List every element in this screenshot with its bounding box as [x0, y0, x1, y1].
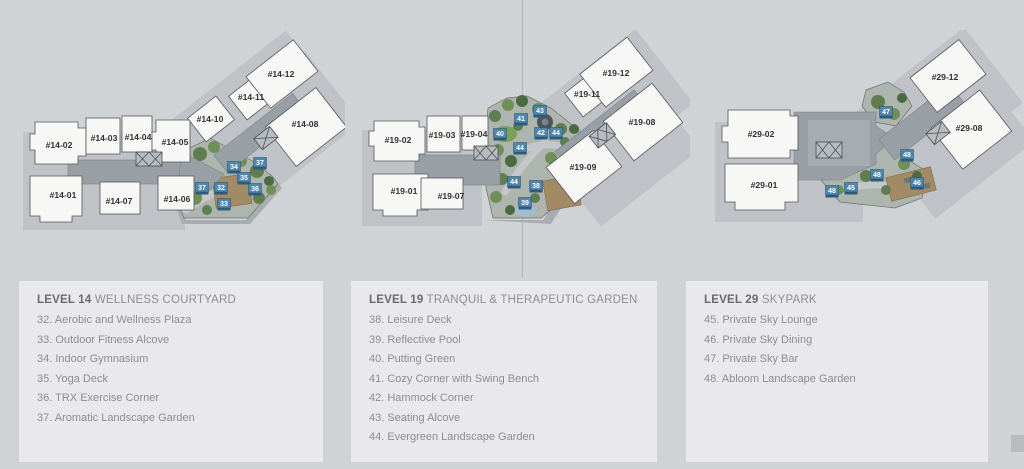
legend-list: 32. Aerobic and Wellness Plaza33. Outdoo… [37, 311, 305, 428]
amenity-marker-number: 39 [521, 200, 529, 207]
amenity-marker: 41 [515, 114, 528, 126]
legend-list: 45. Private Sky Lounge46. Private Sky Di… [704, 311, 970, 389]
unit-label: #14-07 [106, 196, 133, 206]
legend-item: 45. Private Sky Lounge [704, 311, 970, 331]
amenity-marker-number: 46 [913, 180, 921, 187]
unit-label: #29-02 [748, 129, 775, 139]
amenity-marker-number: 41 [517, 116, 525, 123]
legend-item: 46. Private Sky Dining [704, 331, 970, 351]
amenity-marker-number: 47 [882, 109, 890, 116]
amenity-marker: 44 [508, 177, 521, 189]
amenity-marker: 37 [254, 158, 267, 170]
amenity-marker-number: 42 [537, 130, 545, 137]
legend-item: 48. Abloom Landscape Garden [704, 370, 970, 390]
unit-label: #14-02 [46, 140, 73, 150]
unit-label: #19-11 [574, 89, 601, 99]
unit-label: #14-10 [197, 114, 224, 124]
unit-label: #14-05 [162, 137, 189, 147]
unit-label: #19-08 [629, 117, 656, 127]
amenity-marker: 48 [826, 186, 839, 198]
legend-title: LEVEL 19 TRANQUIL & THERAPEUTIC GARDEN [369, 294, 639, 306]
floor-plan-level-19: #19-02#19-03#19-04#19-01#19-07#19-11#19-… [355, 30, 690, 252]
unit-label: #29-01 [751, 180, 778, 190]
unit-label: #19-04 [461, 129, 488, 139]
amenity-marker-number: 34 [230, 164, 238, 171]
ui-fragment [1011, 435, 1024, 452]
amenity-marker: 33 [218, 199, 231, 211]
unit-label: #14-01 [50, 190, 77, 200]
amenity-marker: 40 [494, 129, 507, 141]
amenity-marker: 37 [196, 183, 209, 195]
amenity-marker: 35 [238, 173, 251, 185]
legend-level: LEVEL 29 [704, 294, 758, 306]
legend-item: 37. Aromatic Landscape Garden [37, 409, 305, 429]
unit-label: #14-12 [268, 69, 295, 79]
amenity-marker: 46 [911, 178, 924, 190]
lift-core-icon [474, 146, 498, 160]
unit-label: #14-03 [91, 133, 118, 143]
amenity-marker-number: 37 [198, 185, 206, 192]
unit-label: #19-12 [603, 68, 630, 78]
amenity-marker: 44 [514, 143, 527, 155]
legend-item: 43. Seating Alcove [369, 409, 639, 429]
unit-label: #19-09 [570, 162, 597, 172]
legend-panel-level-29: LEVEL 29 SKYPARK 45. Private Sky Lounge4… [686, 281, 988, 462]
legend-name: WELLNESS COURTYARD [95, 294, 236, 306]
amenity-marker-number: 32 [217, 185, 225, 192]
floor-plan-level-29: #29-02#29-01#29-12#29-08 474848464548 [690, 30, 1024, 252]
unit-label: #19-01 [391, 186, 418, 196]
legend-item: 32. Aerobic and Wellness Plaza [37, 311, 305, 331]
amenity-marker: 36 [249, 184, 262, 196]
amenity-marker-number: 33 [220, 201, 228, 208]
amenity-marker-number: 38 [532, 183, 540, 190]
unit-label: #19-02 [385, 135, 412, 145]
unit-label: #14-08 [292, 119, 319, 129]
floor-plan-level-14: #14-02#14-03#14-04#14-05#14-01#14-07#14-… [10, 30, 345, 252]
amenity-marker: 42 [535, 128, 548, 140]
legend-item: 47. Private Sky Bar [704, 350, 970, 370]
amenity-marker: 44 [550, 128, 563, 140]
legend-panel-level-19: LEVEL 19 TRANQUIL & THERAPEUTIC GARDEN 3… [351, 281, 657, 462]
amenity-marker-number: 44 [510, 179, 518, 186]
amenity-marker: 45 [845, 183, 858, 195]
legend-name: TRANQUIL & THERAPEUTIC GARDEN [427, 294, 638, 306]
legend-list: 38. Leisure Deck39. Reflective Pool40. P… [369, 311, 639, 448]
amenity-marker-number: 44 [516, 145, 524, 152]
legend-item: 44. Evergreen Landscape Garden [369, 428, 639, 448]
amenity-marker: 48 [901, 150, 914, 162]
legend-item: 33. Outdoor Fitness Alcove [37, 331, 305, 351]
amenity-marker: 38 [530, 181, 543, 193]
amenity-marker: 43 [534, 106, 547, 118]
unit-label: #19-03 [429, 130, 456, 140]
amenity-marker-number: 36 [251, 186, 259, 193]
amenity-marker: 47 [880, 107, 893, 119]
unit-label: #14-04 [125, 132, 152, 142]
amenity-marker: 34 [228, 162, 241, 174]
amenity-marker-number: 44 [552, 130, 560, 137]
legend-level: LEVEL 14 [37, 294, 91, 306]
lift-core-icon [816, 142, 842, 158]
legend-name: SKYPARK [762, 294, 817, 306]
amenity-marker-number: 48 [903, 152, 911, 159]
legend-item: 36. TRX Exercise Corner [37, 389, 305, 409]
unit-label: #19-07 [438, 191, 465, 201]
amenity-marker: 39 [519, 198, 532, 210]
amenity-marker-number: 40 [496, 131, 504, 138]
legend-title: LEVEL 14 WELLNESS COURTYARD [37, 294, 305, 306]
amenity-marker-number: 37 [256, 160, 264, 167]
legend-item: 38. Leisure Deck [369, 311, 639, 331]
legend-title: LEVEL 29 SKYPARK [704, 294, 970, 306]
amenity-marker: 32 [215, 183, 228, 195]
amenity-marker: 48 [871, 170, 884, 182]
amenity-marker-number: 45 [847, 185, 855, 192]
lift-core-icon [136, 152, 162, 166]
legend-item: 39. Reflective Pool [369, 331, 639, 351]
legend-item: 34. Indoor Gymnasium [37, 350, 305, 370]
amenity-marker-number: 43 [536, 108, 544, 115]
legend-item: 42. Hammock Corner [369, 389, 639, 409]
unit-label: #14-06 [164, 194, 191, 204]
legend-level: LEVEL 19 [369, 294, 423, 306]
amenity-marker-number: 48 [828, 188, 836, 195]
unit-label: #14-11 [238, 92, 265, 102]
unit-label: #29-08 [956, 123, 983, 133]
amenity-marker-number: 48 [873, 172, 881, 179]
legend-item: 41. Cozy Corner with Swing Bench [369, 370, 639, 390]
unit-label: #29-12 [932, 72, 959, 82]
legend-panel-level-14: LEVEL 14 WELLNESS COURTYARD 32. Aerobic … [19, 281, 323, 462]
legend-item: 40. Putting Green [369, 350, 639, 370]
amenity-marker-number: 35 [240, 175, 248, 182]
legend-item: 35. Yoga Deck [37, 370, 305, 390]
